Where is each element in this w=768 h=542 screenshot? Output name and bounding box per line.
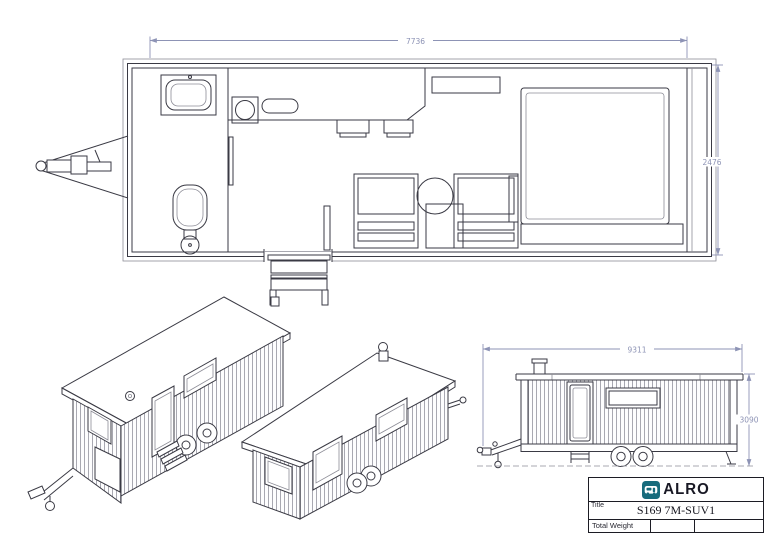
entry-door-opening xyxy=(264,206,332,262)
logo-text: ALRO xyxy=(663,481,710,499)
seat-right xyxy=(454,174,518,248)
plan-hitch xyxy=(36,136,128,198)
isometric-view-front xyxy=(28,297,290,511)
total-weight-unit-cell xyxy=(695,520,763,533)
logo-row: ALRO xyxy=(589,478,763,502)
plan-length-dimension: 7736 xyxy=(406,37,425,46)
title-row: Title S169 7M-SUV1 xyxy=(589,502,763,520)
title-block: ALRO Title S169 7M-SUV1 Total Weight xyxy=(588,477,764,533)
floor-plan-view: 7736 2476 xyxy=(36,36,725,306)
elevation-hitch xyxy=(477,439,521,468)
chimney-elevation-icon xyxy=(532,359,547,374)
plan-width-dimension: 2476 xyxy=(702,158,721,167)
rear-jack-leg xyxy=(726,452,736,465)
shower-tray xyxy=(161,75,216,115)
elevation-window xyxy=(606,388,660,408)
total-weight-row: Total Weight xyxy=(589,520,763,533)
iso2-hitch xyxy=(448,397,466,408)
total-weight-label: Total Weight xyxy=(589,520,651,533)
cabinet xyxy=(426,204,463,248)
total-weight-value-cell xyxy=(651,520,695,533)
chimney-icon xyxy=(379,343,389,362)
hob-unit xyxy=(337,120,369,133)
roof-vent-icon xyxy=(126,392,135,401)
elevation-length-dimension: 9311 xyxy=(627,345,646,354)
seat-left xyxy=(354,174,418,248)
bathroom-partition xyxy=(228,68,233,252)
bed xyxy=(509,68,692,252)
seating-group xyxy=(354,174,518,248)
iso-hitch xyxy=(28,468,73,511)
elevation-door xyxy=(567,382,593,444)
side-elevation-view: 9311 3090 xyxy=(477,344,764,468)
elevation-height-dimension: 3090 xyxy=(739,416,758,425)
round-table xyxy=(417,178,453,214)
wall-cabinet xyxy=(432,77,500,93)
toilet xyxy=(173,185,207,254)
oven-unit xyxy=(384,120,413,133)
door-leaf xyxy=(324,206,330,250)
drawing-canvas: 7736 2476 xyxy=(0,0,768,542)
drawing-title: S169 7M-SUV1 xyxy=(589,503,763,518)
roof-flue-icon xyxy=(271,297,279,306)
caravan-icon xyxy=(642,481,660,499)
wash-basin xyxy=(262,99,298,113)
kitchen-counter xyxy=(228,69,500,138)
